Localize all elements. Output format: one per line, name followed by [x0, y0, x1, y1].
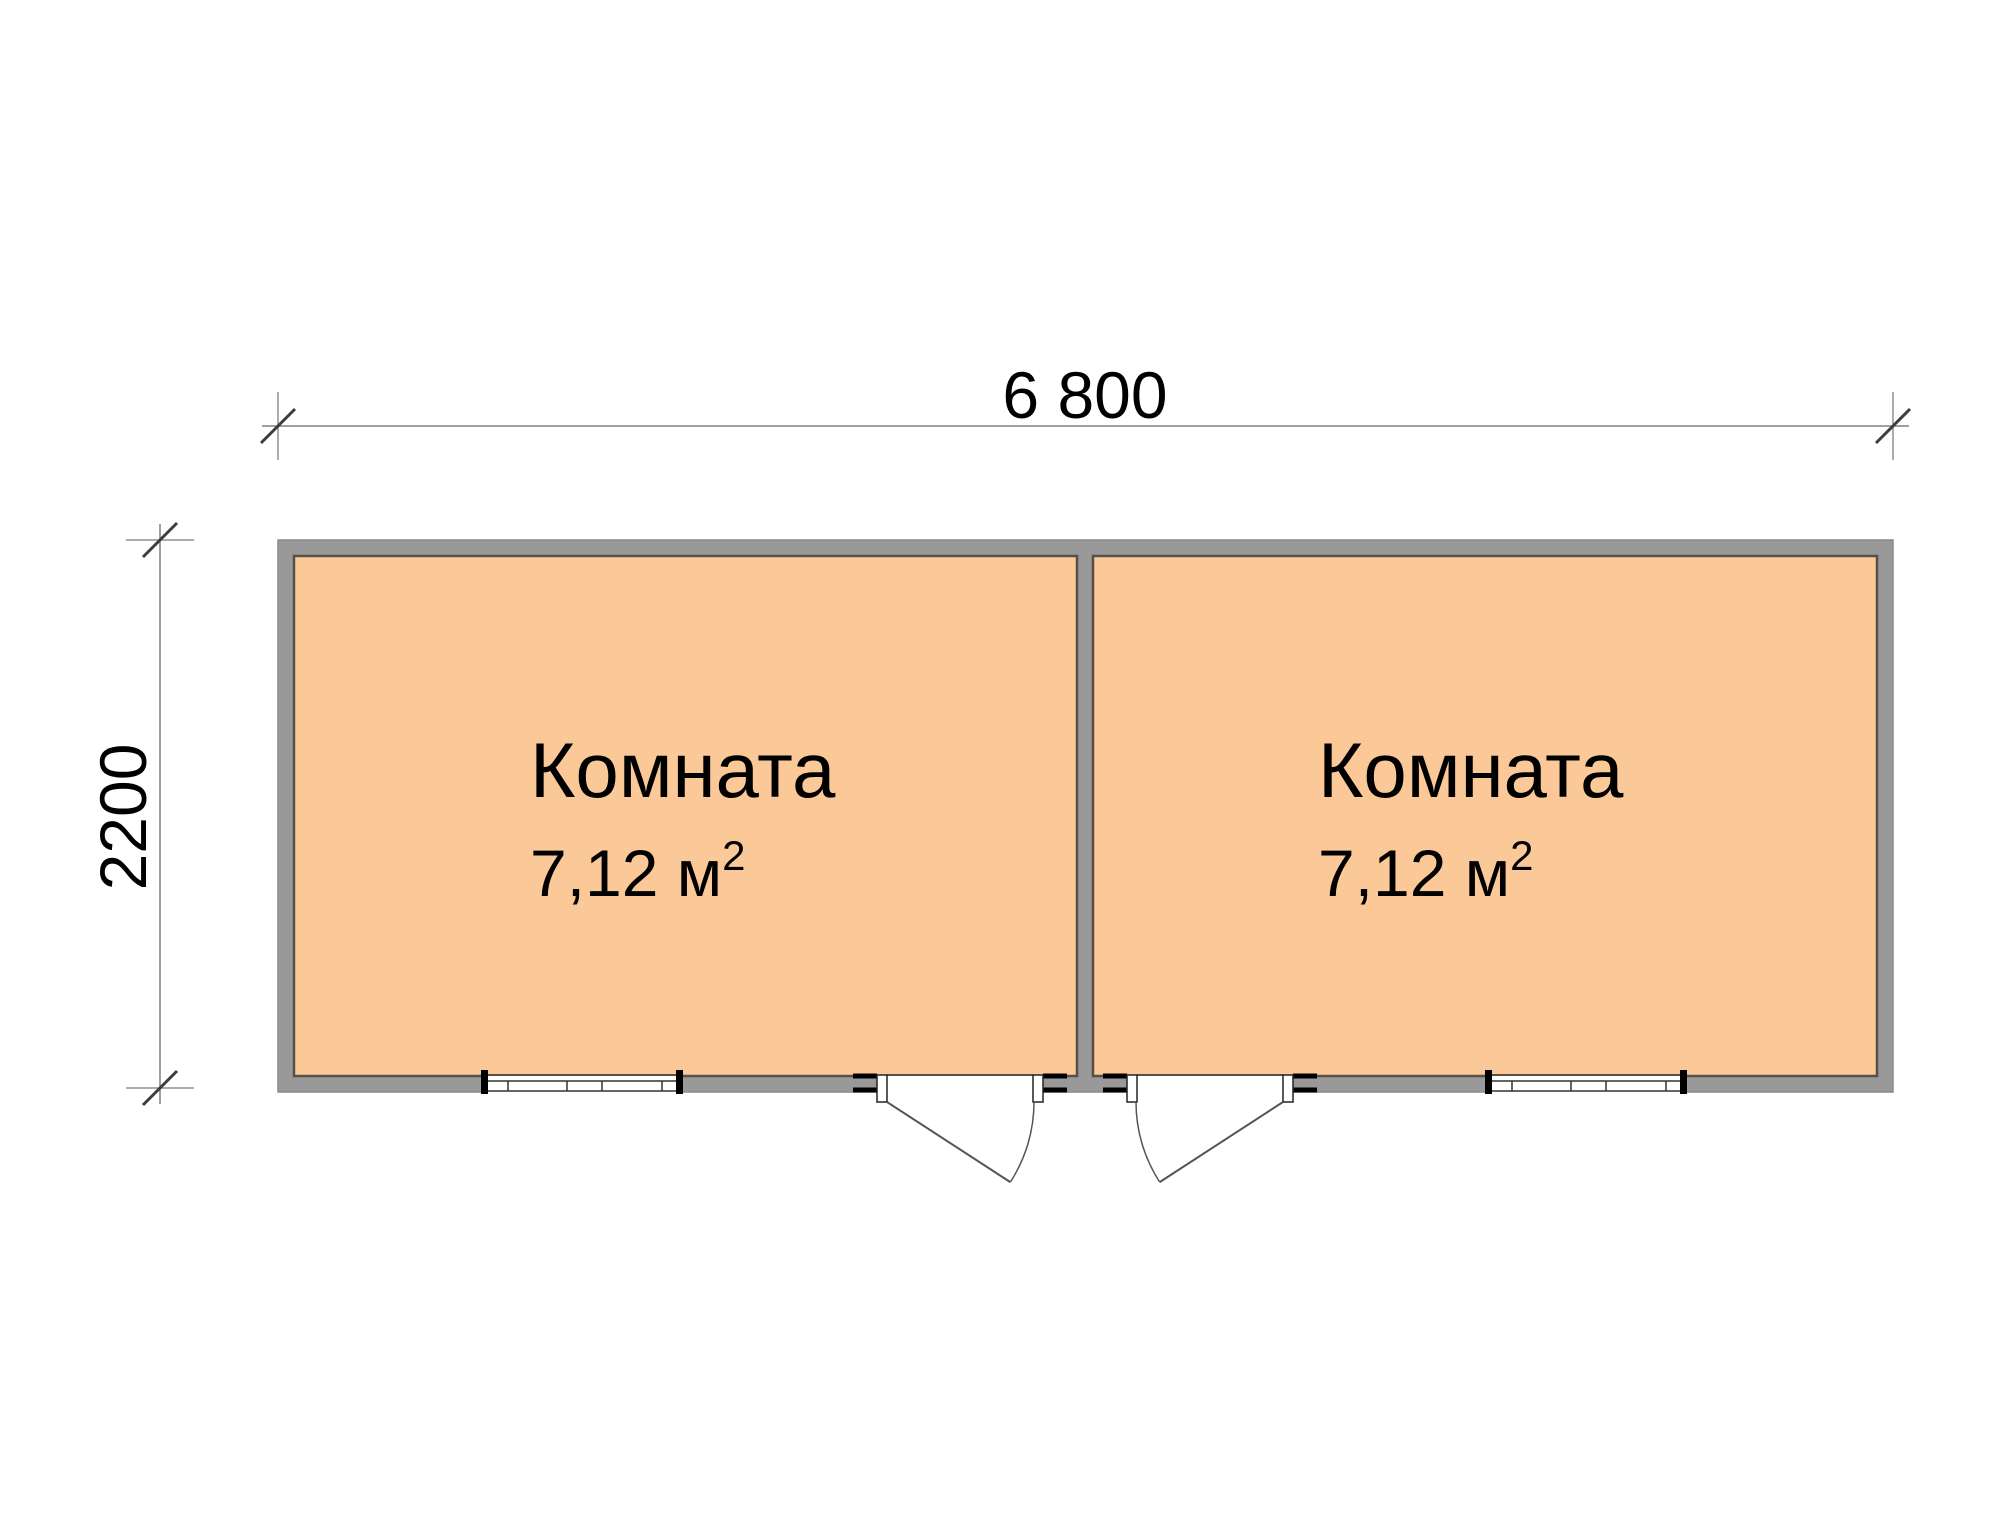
door-leaf — [887, 1102, 1010, 1182]
door-opening — [887, 1074, 1033, 1093]
floor-plan-page: 6 800 2200 Комната 7,12 м2 Комната 7,12 … — [0, 0, 2000, 1539]
door-room-1 — [853, 1074, 1067, 1182]
door-jamb — [1283, 1075, 1293, 1102]
room-area: 7,12 м2 — [1318, 832, 1534, 910]
left-dimension-label: 2200 — [86, 744, 160, 891]
door-leaf — [1160, 1102, 1283, 1182]
door-jamb — [877, 1075, 887, 1102]
door-room-2 — [1103, 1074, 1317, 1182]
window-end-cap — [1485, 1070, 1492, 1094]
building — [278, 540, 1893, 1092]
window-opening — [1485, 1074, 1687, 1093]
room-area-value: 7,12 м — [530, 836, 722, 910]
window-end-cap — [481, 1070, 488, 1094]
left-dimension: 2200 — [86, 523, 194, 1105]
floor-plan-canvas: 6 800 2200 Комната 7,12 м2 Комната 7,12 … — [0, 0, 2000, 1539]
room-name: Комната — [1318, 726, 1624, 814]
room-area: 7,12 м2 — [530, 832, 746, 910]
top-dimension: 6 800 — [261, 358, 1910, 460]
room-1-floor — [294, 556, 1077, 1076]
door-jamb — [1127, 1075, 1137, 1102]
door-swing-arc — [1136, 1102, 1160, 1182]
door-swing-arc — [1010, 1102, 1034, 1182]
room-name: Комната — [530, 726, 836, 814]
window-end-cap — [676, 1070, 683, 1094]
room-area-value: 7,12 м — [1318, 836, 1510, 910]
door-opening — [1137, 1074, 1283, 1093]
window-end-cap — [1680, 1070, 1687, 1094]
door-jamb — [1033, 1075, 1043, 1102]
room-area-superscript: 2 — [722, 832, 745, 879]
window-opening — [481, 1074, 683, 1093]
room-area-superscript: 2 — [1510, 832, 1533, 879]
top-dimension-label: 6 800 — [1002, 358, 1167, 432]
room-2-floor — [1093, 556, 1877, 1076]
